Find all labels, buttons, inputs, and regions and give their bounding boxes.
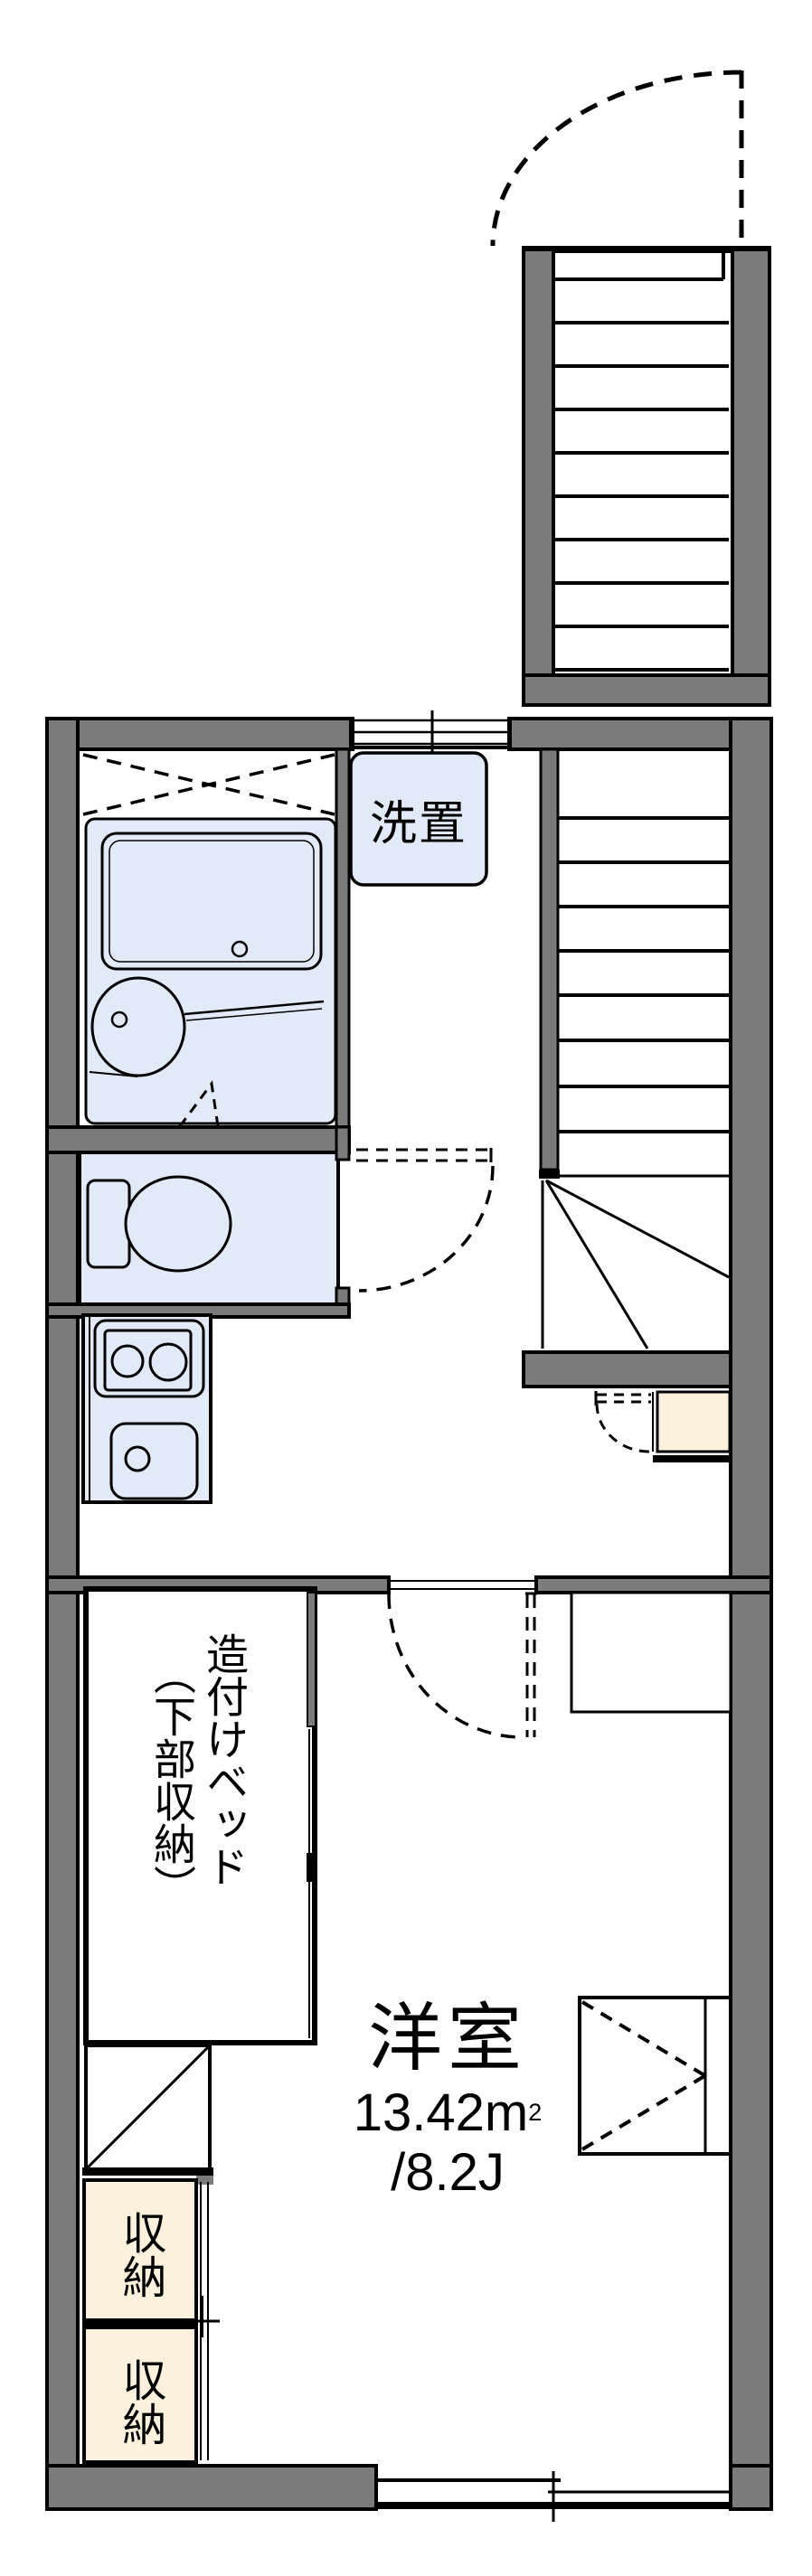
exterior-staircase [522, 246, 771, 705]
floorplan-canvas: 洗置 造付けベッド （下部収納） 洋室 13.42m2 /8.2J 収納 収納 [0, 0, 812, 2576]
washbasin [92, 978, 184, 1076]
toilet-bowl [126, 1177, 231, 1271]
winder-steps [543, 1180, 729, 1349]
sink-drain [126, 1447, 149, 1471]
bath-hall-wall [336, 749, 349, 1127]
internal-staircase [524, 749, 731, 1387]
toilet-room [47, 1127, 493, 1317]
room-area-exponent: 2 [528, 2099, 542, 2127]
room-area-value: 13.42m [354, 2082, 528, 2143]
exterior-stair-steps [553, 253, 729, 670]
room-door-swing [389, 1594, 537, 1737]
bathtub [102, 833, 321, 969]
bed-label-line1: 造付けベッド [195, 1632, 246, 1985]
bed-label-line2: （下部収納） [143, 1652, 194, 1960]
room-area-label: 13.42m2 [316, 2084, 579, 2140]
storage-lower-label: 収納 [117, 2335, 164, 2468]
stair-stub-wall [524, 1352, 731, 1387]
wall-cabinet [580, 1998, 731, 2154]
counter [571, 1593, 731, 1712]
bathroom-window-x [83, 755, 335, 814]
toilet-tank [88, 1180, 129, 1267]
toilet-door-swing [356, 1148, 493, 1291]
bathtub-drain [232, 942, 247, 956]
kitchen-unit [83, 1315, 211, 1502]
bottom-window [376, 2471, 731, 2522]
room-area-tatami-label: /8.2J [316, 2144, 579, 2200]
storage-upper-label: 収納 [117, 2187, 164, 2321]
laundry-label: 洗置 [351, 753, 486, 885]
bed-step-box [82, 2045, 213, 2185]
burner-left [112, 1346, 143, 1377]
entrance-door-swing [493, 71, 741, 246]
room-name-label: 洋室 [339, 1996, 556, 2082]
sink [111, 1424, 197, 1499]
bathroom [83, 755, 335, 1126]
burner-right [150, 1344, 186, 1380]
shoe-cabinet [596, 1391, 731, 1462]
